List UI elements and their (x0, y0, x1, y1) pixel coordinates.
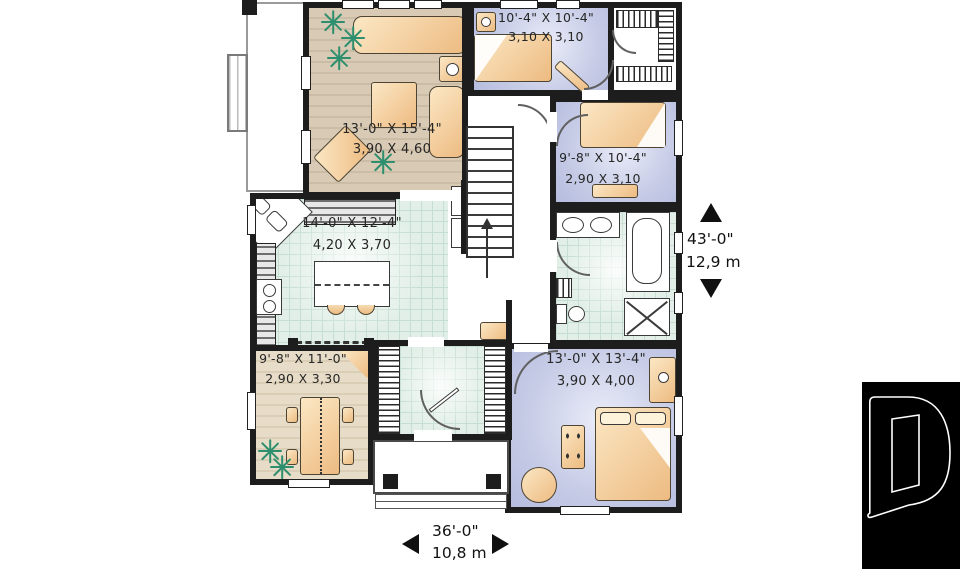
side-table (439, 56, 465, 82)
dining-size-imperial: 9'-8" X 11'-0" (259, 351, 347, 366)
bed (595, 407, 671, 501)
bedroom-top-door-opening (582, 90, 608, 100)
knob (658, 372, 669, 383)
closet-shelves (658, 10, 674, 62)
porch-post (486, 474, 501, 489)
side-porch-bay-window (227, 54, 248, 132)
window (674, 120, 683, 156)
dining-room (250, 345, 374, 485)
corner-chair (521, 467, 557, 503)
blanket-fold (637, 103, 665, 147)
table-divider (320, 398, 322, 474)
overall-depth-metric: 12,9 m (686, 253, 741, 271)
kitchen-size-metric: 4,20 X 3,70 (313, 238, 391, 253)
plant-icon (327, 46, 351, 70)
half-wall-post (364, 338, 374, 348)
dimension-arrow-down-icon (700, 279, 722, 298)
porch-steps (375, 494, 507, 509)
dimension-arrow-right-icon (492, 534, 509, 554)
overall-width-imperial: 36'-0" (432, 522, 479, 540)
blanket-fold (640, 428, 670, 468)
stair-arrow-shaft (486, 228, 488, 278)
burner (263, 284, 276, 297)
toilet-tank (556, 304, 567, 324)
window (500, 0, 538, 9)
sink-basin (265, 209, 289, 233)
window (288, 479, 330, 488)
porch-post (242, 0, 257, 15)
kitchen-half-wall (296, 341, 368, 344)
bathroom (550, 206, 682, 346)
chair (342, 449, 354, 465)
bedroom-mid-door-opening (547, 112, 557, 142)
shower (624, 298, 670, 336)
brand-logo (862, 382, 960, 569)
window (247, 392, 256, 430)
dresser (561, 425, 585, 469)
porch-door (301, 56, 311, 90)
kitchen-island (314, 261, 390, 307)
sink (562, 217, 584, 233)
bed (580, 102, 666, 148)
bathtub-basin (632, 218, 662, 284)
nightstand (476, 12, 496, 32)
bathtub (626, 212, 670, 292)
dimension-arrow-up-icon (700, 203, 722, 222)
burner (263, 300, 276, 313)
porch-post (383, 474, 398, 489)
overall-depth-imperial: 43'-0" (687, 230, 734, 248)
sink (590, 217, 612, 233)
side-porch (246, 2, 306, 192)
porch-door (301, 130, 311, 164)
pillow (600, 412, 631, 425)
window (378, 0, 410, 9)
island-divider (315, 284, 389, 286)
living-hall-opening (400, 190, 452, 201)
armoire (649, 357, 676, 403)
bedroom-top-size-metric: 3,10 X 3,10 (508, 29, 583, 44)
coat-closet (378, 346, 400, 434)
sofa (353, 16, 467, 54)
toilet-bowl (568, 306, 585, 322)
hall-wall (506, 300, 512, 344)
back-hall-closets (608, 2, 682, 96)
stool (327, 305, 345, 315)
console-table (480, 322, 508, 340)
window (674, 396, 683, 436)
half-wall-post (288, 338, 298, 348)
linen-closet (556, 278, 572, 298)
living-room-size-metric: 3,90 X 4,60 (353, 142, 431, 157)
bedroom-mid-size-metric: 2,90 X 3,10 (565, 171, 640, 186)
blanket-fold (475, 35, 507, 81)
coat-closet (484, 346, 506, 434)
stair-wall (461, 180, 466, 254)
window (674, 232, 683, 254)
bedroom-mid-size-imperial: 9'-8" X 10'-4" (559, 150, 647, 165)
staircase (466, 126, 514, 258)
dresser (592, 184, 638, 198)
dining-size-metric: 2,90 X 3,30 (265, 371, 340, 386)
window (342, 0, 374, 9)
master-size-imperial: 13'-0" X 13'-4" (546, 352, 646, 367)
dining-table (300, 397, 340, 475)
window (556, 0, 580, 9)
master-size-metric: 3,90 X 4,00 (557, 374, 635, 389)
window (560, 506, 610, 515)
bedroom-top-size-imperial: 10'-4" X 10'-4" (498, 10, 594, 25)
lamp-icon (446, 63, 459, 76)
lamp-icon (481, 17, 491, 27)
chair (286, 407, 298, 423)
chair (342, 407, 354, 423)
dimension-arrow-left-icon (402, 534, 419, 554)
master-door-opening (514, 344, 548, 352)
foyer-opening (408, 337, 444, 347)
closet-shelves (616, 10, 658, 28)
overall-width-metric: 10,8 m (432, 544, 487, 562)
closet-shelves (616, 66, 672, 82)
window (247, 205, 256, 235)
kitchen-size-imperial: 14'-0" X 12'-4" (302, 216, 402, 231)
bath-door-opening (547, 240, 557, 272)
window (674, 292, 683, 314)
stool (357, 305, 375, 315)
living-room (303, 2, 468, 198)
front-porch (373, 440, 509, 494)
living-room-size-imperial: 13'-0" X 15'-4" (342, 122, 442, 137)
plant-icon (270, 455, 294, 479)
floor-plan-canvas: 13'-0" X 15'-4" 3,90 X 4,60 10'-4" X 10'… (0, 0, 960, 569)
stove (256, 279, 282, 315)
window (414, 0, 442, 9)
front-door-opening (414, 430, 452, 441)
logo-d-icon (862, 382, 960, 569)
step-line (376, 501, 506, 502)
pillow (635, 412, 666, 425)
